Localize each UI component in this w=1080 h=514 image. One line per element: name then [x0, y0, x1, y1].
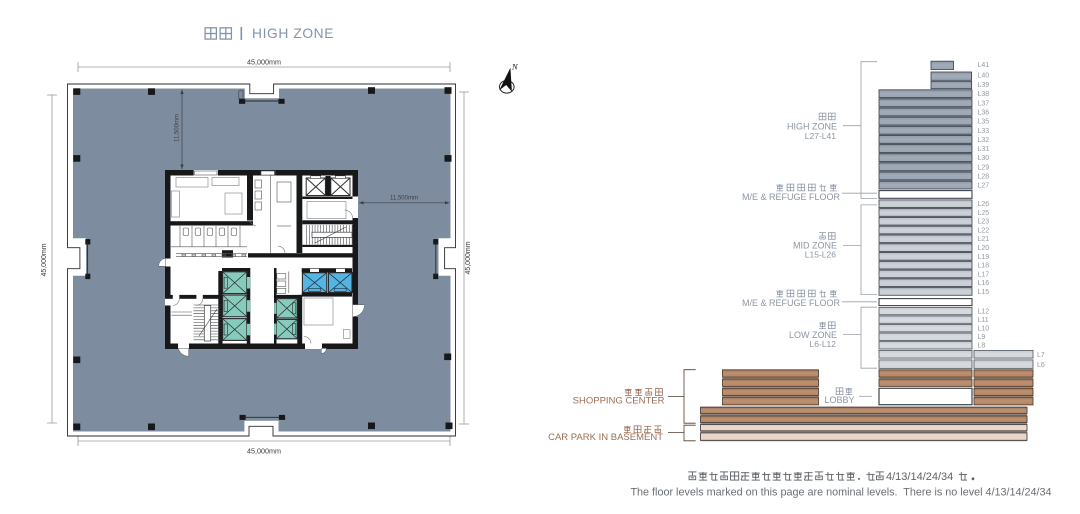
svg-text:HIGH ZONE: HIGH ZONE: [787, 121, 837, 131]
svg-text:L41: L41: [978, 62, 990, 69]
svg-text:M/E & REFUGE FLOOR: M/E & REFUGE FLOOR: [742, 298, 841, 308]
svg-text:L29: L29: [978, 164, 990, 171]
svg-text:L6-L12: L6-L12: [810, 339, 837, 349]
svg-text:45,000mm: 45,000mm: [41, 243, 48, 276]
svg-text:The floor levels marked on thi: The floor levels marked on this page are…: [630, 486, 1051, 498]
svg-text:L39: L39: [978, 82, 990, 89]
svg-text:L8: L8: [978, 343, 986, 350]
svg-text:L15-L26: L15-L26: [805, 250, 836, 260]
svg-text:L18: L18: [978, 263, 990, 270]
svg-text:L30: L30: [978, 155, 990, 162]
svg-text:L32: L32: [978, 137, 990, 144]
svg-text:45,000mm: 45,000mm: [465, 241, 472, 274]
svg-text:L15: L15: [978, 289, 990, 296]
svg-text:L27-L41: L27-L41: [805, 131, 836, 141]
svg-text:M/E & REFUGE FLOOR: M/E & REFUGE FLOOR: [742, 192, 841, 202]
svg-text:L26: L26: [978, 201, 990, 208]
svg-text:11,500mm: 11,500mm: [175, 114, 181, 142]
svg-text:L10: L10: [978, 326, 990, 333]
svg-text:L38: L38: [978, 91, 990, 98]
svg-text:L17: L17: [978, 271, 990, 278]
svg-text:L22: L22: [978, 227, 990, 234]
svg-text:45,000mm: 45,000mm: [247, 447, 281, 456]
svg-text:L9: L9: [978, 334, 986, 341]
svg-text:11,500mm: 11,500mm: [390, 196, 418, 202]
svg-text:L40: L40: [978, 73, 990, 80]
svg-text:L28: L28: [978, 173, 990, 180]
svg-text:L37: L37: [978, 100, 990, 107]
svg-text:L20: L20: [978, 245, 990, 252]
svg-text:L19: L19: [978, 254, 990, 261]
svg-text:L23: L23: [978, 219, 990, 226]
svg-text:L33: L33: [978, 128, 990, 135]
svg-text:L6: L6: [1037, 362, 1045, 369]
svg-text:HIGH ZONE: HIGH ZONE: [252, 26, 334, 41]
svg-text:L35: L35: [978, 119, 990, 126]
svg-text:L31: L31: [978, 146, 990, 153]
svg-text:CAR PARK IN BASEMENT: CAR PARK IN BASEMENT: [548, 432, 663, 443]
svg-text:L25: L25: [978, 210, 990, 217]
svg-text:SHOPPING CENTER: SHOPPING CENTER: [573, 396, 665, 407]
svg-text:L7: L7: [1037, 352, 1045, 359]
svg-text:LOBBY: LOBBY: [824, 395, 854, 405]
svg-text:L21: L21: [978, 236, 990, 243]
svg-text:L12: L12: [978, 309, 990, 316]
svg-text:L36: L36: [978, 109, 990, 116]
svg-text:L27: L27: [978, 183, 990, 190]
svg-text:L11: L11: [978, 317, 989, 324]
svg-text:L16: L16: [978, 280, 990, 287]
svg-text:45,000mm: 45,000mm: [247, 58, 281, 67]
svg-text:4/13/14/24/34: 4/13/14/24/34: [886, 471, 953, 483]
